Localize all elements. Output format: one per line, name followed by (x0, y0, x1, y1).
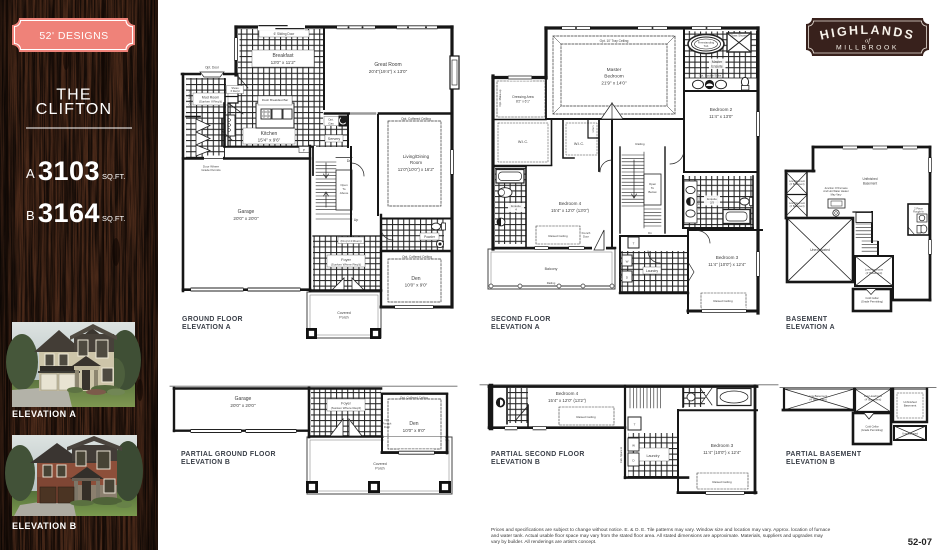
svg-text:Opt. 10' Tray Ceiling: Opt. 10' Tray Ceiling (600, 39, 629, 43)
svg-text:Den: Den (411, 276, 420, 282)
svg-text:Den: Den (409, 421, 418, 427)
svg-text:P: P (303, 148, 305, 152)
svg-text:ELEVATION B: ELEVATION B (786, 459, 835, 466)
svg-text:ELEVATION A: ELEVATION A (491, 324, 540, 331)
svg-text:W: W (632, 444, 635, 448)
svg-text:Grade Permits: Grade Permits (201, 168, 221, 172)
svg-text:T: T (634, 423, 636, 427)
svg-text:Dressing Area: Dressing Area (512, 95, 533, 99)
svg-text:Door: Door (384, 425, 390, 429)
svg-text:6' Sliding Door: 6' Sliding Door (274, 32, 296, 36)
svg-text:Raised Ceiling: Raised Ceiling (713, 299, 733, 303)
svg-text:Dn: Dn (648, 231, 652, 235)
svg-text:Linen: Linen (591, 125, 595, 132)
svg-text:Breakfast: Breakfast (272, 53, 294, 59)
svg-text:11'4" x 13'0": 11'4" x 13'0" (709, 114, 733, 119)
svg-text:Foyer: Foyer (341, 258, 351, 262)
svg-text:Covered: Covered (373, 462, 387, 466)
svg-text:BASEMENT: BASEMENT (786, 316, 828, 323)
svg-text:13'0" x 11'2": 13'0" x 11'2" (271, 60, 296, 65)
svg-text:Gas: Gas (328, 122, 334, 126)
svg-text:MILLBROOK: MILLBROOK (836, 45, 899, 52)
svg-text:May Vary: May Vary (831, 192, 842, 196)
svg-text:ELEVATION A: ELEVATION A (12, 409, 76, 419)
svg-text:ELEVATION A: ELEVATION A (786, 324, 835, 331)
svg-text:PARTIAL BASEMENT: PARTIAL BASEMENT (786, 451, 862, 458)
svg-text:11'4" (10'0") x 12'4": 11'4" (10'0") x 12'4" (708, 262, 746, 267)
svg-text:Ensuite: Ensuite (711, 65, 722, 69)
svg-text:W: W (626, 260, 629, 264)
svg-text:Bedroom: Bedroom (604, 74, 623, 80)
svg-text:PARTIAL GROUND FLOOR: PARTIAL GROUND FLOOR (181, 451, 276, 458)
svg-text:Tub: Tub (704, 44, 709, 48)
svg-text:SQ.FT.: SQ.FT. (102, 214, 125, 223)
svg-text:52-07: 52-07 (908, 537, 932, 548)
svg-text:8'2" x 6'1": 8'2" x 6'1" (516, 100, 530, 104)
svg-text:(Grade Permitting): (Grade Permitting) (861, 428, 883, 432)
svg-text:15'4" x 12'0" (13'2"): 15'4" x 12'0" (13'2") (548, 398, 586, 403)
svg-text:Basement: Basement (904, 404, 917, 408)
svg-text:Bedroom 2: Bedroom 2 (710, 107, 733, 112)
svg-text:T: T (633, 242, 635, 246)
svg-text:Garage: Garage (235, 396, 252, 402)
svg-text:(4' Basement): (4' Basement) (866, 271, 883, 275)
svg-text:Opt. Door: Opt. Door (205, 66, 220, 70)
svg-text:2/3: 2/3 (710, 200, 714, 204)
svg-text:GROUND FLOOR: GROUND FLOOR (182, 316, 243, 323)
svg-text:20'4"(19'4") x 13'0": 20'4"(19'4") x 13'0" (369, 69, 408, 74)
svg-text:(Sunken Where Req'd): (Sunken Where Req'd) (331, 406, 361, 410)
svg-text:Opt. Coffered Ceiling: Opt. Coffered Ceiling (400, 396, 428, 400)
svg-text:Dn: Dn (347, 159, 352, 163)
svg-text:Kitchen: Kitchen (261, 131, 278, 137)
svg-text:Below: Below (648, 190, 657, 194)
svg-text:Cab. Space in: Cab. Space in (619, 446, 623, 463)
svg-text:3103: 3103 (38, 156, 100, 186)
svg-text:Glass Shower: Glass Shower (730, 34, 747, 38)
svg-text:Unexcavated: Unexcavated (902, 432, 918, 436)
svg-text:20'0" x 20'0": 20'0" x 20'0" (230, 403, 256, 408)
svg-text:(4' Basement): (4' Basement) (790, 183, 805, 186)
svg-text:Low Headroom: Low Headroom (864, 394, 883, 398)
svg-text:W.I.C.: W.I.C. (518, 140, 528, 144)
svg-text:Bedroom 3: Bedroom 3 (711, 443, 734, 448)
svg-text:vary by builder. All rendering: vary by builder. All renderings are arti… (491, 539, 596, 545)
svg-text:(Sunken Where Req'd): (Sunken Where Req'd) (331, 263, 361, 267)
svg-text:and water tank. Actual usable: and water tank. Actual usable floor spac… (491, 533, 824, 539)
svg-text:Above: Above (340, 191, 349, 195)
svg-text:Balcony: Balcony (545, 267, 558, 271)
svg-text:Cab. Space in: Cab. Space in (619, 261, 623, 278)
svg-text:Raised Ceiling: Raised Ceiling (548, 234, 568, 238)
svg-text:Foyer: Foyer (341, 402, 351, 406)
svg-text:ELEVATION B: ELEVATION B (12, 521, 77, 531)
svg-text:Basement: Basement (863, 182, 877, 186)
svg-text:52' DESIGNS: 52' DESIGNS (39, 30, 108, 42)
svg-text:10'0" x 9'0": 10'0" x 9'0" (403, 428, 426, 433)
svg-text:(Grade Permitting): (Grade Permitting) (861, 300, 883, 304)
svg-text:Master: Master (712, 60, 723, 64)
svg-text:SQ.FT.: SQ.FT. (102, 172, 125, 181)
svg-text:Unfinished: Unfinished (862, 177, 877, 181)
svg-text:11'0"(10'0") x 16'2": 11'0"(10'0") x 16'2" (398, 167, 435, 172)
svg-text:Porch: Porch (375, 467, 384, 471)
svg-text:15'4" x 12'0" (13'0"): 15'4" x 12'0" (13'0") (551, 208, 589, 213)
svg-text:Raised Ceiling: Raised Ceiling (712, 480, 732, 484)
svg-text:Opt. B Shower: Opt. B Shower (697, 193, 701, 210)
svg-text:Porch: Porch (339, 316, 348, 320)
svg-text:Railing: Railing (547, 281, 556, 285)
svg-text:Laundry: Laundry (646, 269, 659, 273)
svg-text:(Sunken If Req'd): (Sunken If Req'd) (199, 100, 222, 104)
svg-text:(4' Basement): (4' Basement) (865, 398, 882, 402)
svg-text:Coat Rack In: Coat Rack In (188, 90, 192, 106)
svg-text:ELEVATION B: ELEVATION B (181, 459, 230, 466)
svg-text:Opt. Coffered Ceiling: Opt. Coffered Ceiling (402, 255, 432, 259)
svg-text:Cold Cellar: Cold Cellar (865, 425, 878, 429)
svg-text:Rough-In: Rough-In (913, 210, 924, 214)
svg-text:Opt. Make-up: Opt. Make-up (498, 89, 502, 106)
svg-text:Cold Cellar: Cold Cellar (865, 296, 878, 300)
svg-text:Bedroom 4: Bedroom 4 (559, 201, 582, 206)
svg-text:If Req'd: If Req'd (231, 89, 240, 93)
svg-text:10'0" x 9'0": 10'0" x 9'0" (405, 283, 428, 288)
svg-text:Master: Master (607, 67, 622, 73)
svg-text:Bedroom 4: Bedroom 4 (556, 391, 579, 396)
svg-text:Flush Breakfast Bar: Flush Breakfast Bar (262, 98, 288, 102)
svg-text:Powder: Powder (424, 235, 436, 239)
svg-text:Prices and specifications are: Prices and specifications are subject to… (491, 527, 831, 533)
svg-text:B: B (26, 208, 35, 223)
svg-text:A: A (26, 166, 35, 181)
svg-text:PARTIAL SECOND FLOOR: PARTIAL SECOND FLOOR (491, 451, 585, 458)
svg-text:Raised Ceiling: Raised Ceiling (576, 415, 596, 419)
svg-text:(Drop'd 4 Risers): (Drop'd 4 Risers) (340, 239, 361, 243)
svg-text:Living/Dining: Living/Dining (403, 154, 430, 159)
svg-text:Door: Door (583, 235, 589, 239)
svg-text:3164: 3164 (38, 198, 100, 228)
svg-text:SECOND FLOOR: SECOND FLOOR (491, 316, 551, 323)
svg-text:W.I.C.: W.I.C. (574, 142, 584, 146)
svg-text:Covered: Covered (337, 311, 351, 315)
svg-text:Opt. Double Sinks: Opt. Double Sinks (699, 74, 722, 78)
svg-text:20'0" x 20'0": 20'0" x 20'0" (233, 216, 259, 221)
svg-text:Up: Up (354, 218, 359, 222)
svg-text:11'4" (10'0") x 12'4": 11'4" (10'0") x 12'4" (703, 450, 741, 455)
svg-text:Servery: Servery (328, 137, 341, 141)
svg-text:(4' Basement): (4' Basement) (809, 398, 826, 402)
svg-text:Great Room: Great Room (374, 62, 401, 68)
svg-text:Railing: Railing (635, 142, 645, 146)
svg-text:CLIFTON: CLIFTON (36, 101, 113, 118)
svg-text:Room: Room (410, 160, 422, 165)
svg-text:ELEVATION B: ELEVATION B (491, 459, 540, 466)
svg-text:ELEVATION A: ELEVATION A (182, 324, 231, 331)
svg-text:21'9" x 14'0": 21'9" x 14'0" (601, 81, 627, 86)
svg-text:15'4" x 9'6": 15'4" x 9'6" (258, 138, 281, 143)
svg-text:Low Headroom: Low Headroom (865, 268, 884, 272)
svg-text:Garage: Garage (238, 209, 255, 215)
svg-text:Unexcavated: Unexcavated (810, 248, 830, 252)
svg-text:Opt. Coffered Ceiling: Opt. Coffered Ceiling (401, 117, 431, 121)
svg-text:Laundry: Laundry (647, 454, 660, 458)
svg-text:(4' Basement): (4' Basement) (790, 205, 805, 208)
svg-text:Bedroom 3: Bedroom 3 (716, 255, 739, 260)
